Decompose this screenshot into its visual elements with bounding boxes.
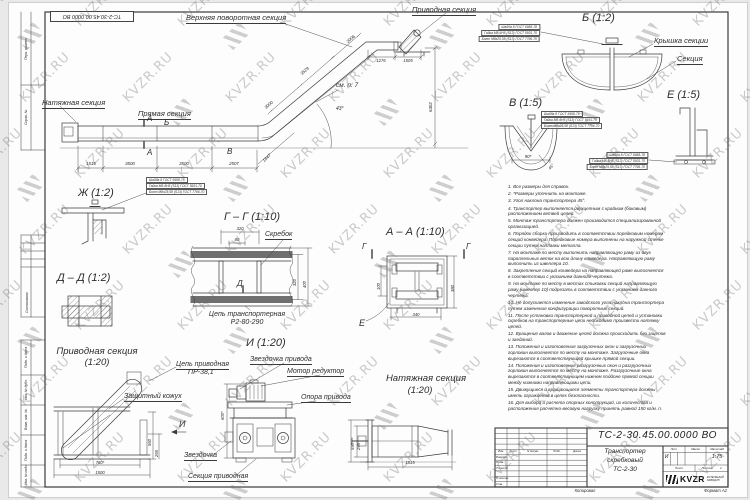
- detail-mark-v: В: [227, 148, 232, 156]
- note-item: 3. Угол наклона транспортера 45°.: [508, 198, 666, 204]
- label-sekciya: Секция: [677, 55, 703, 65]
- frame-label-soglasovano: Согласовано: [26, 292, 29, 313]
- frame-label-inv-podl: Инв. № подл.: [25, 464, 28, 485]
- dim-80: 80: [235, 238, 240, 242]
- dim-590: 590: [351, 443, 355, 450]
- label-verhnyaya-povorotnaya-s: Верхняя поворотная секция: [186, 14, 286, 24]
- titleblock-row-utv: Утв.: [496, 483, 503, 486]
- dim-1505: 1505: [403, 59, 412, 63]
- dim-600: 600*: [221, 411, 225, 420]
- callout-bolt: Болт М8х25,58 (S13) ГОСТ 7796-70: [479, 36, 540, 42]
- dim-3500-2: 3500: [179, 162, 189, 166]
- dim-90: 90*: [525, 155, 532, 159]
- titleblock-scale-header: Масштаб: [706, 448, 728, 451]
- dim-340: 340: [413, 313, 420, 317]
- dim-1515-natyazh: 1515: [405, 461, 414, 465]
- dim-3529: 3529: [300, 67, 310, 77]
- natyazh-view-title-2: (1:20): [408, 386, 433, 396]
- note-item: 10. Не допускается изменение заводского …: [508, 300, 666, 311]
- kvzr-logo-text: KVZR: [680, 474, 705, 484]
- dim-6302: 6302: [429, 102, 433, 112]
- kvzr-logo-stripes-icon: [666, 475, 678, 484]
- note-item: 12. Вращение валов и движение цепей долж…: [508, 331, 666, 342]
- detail-v-title: В (1:5): [509, 98, 542, 109]
- format-label: Формат А2: [704, 489, 727, 493]
- titleblock-mass-header: Масса: [685, 448, 706, 451]
- titleblock-lit-header: Лит.: [663, 448, 685, 451]
- label-sekciya-privodnaya: Секция приводная: [188, 473, 248, 482]
- dim-2006: 2006: [346, 35, 356, 45]
- detail-aa-title: А – А (1:10): [386, 227, 445, 238]
- dim-560: 560: [148, 439, 152, 446]
- titleblock-row-prov: Пров.: [496, 461, 504, 464]
- frame-label-podp-data-1: Подп. и дата: [25, 347, 28, 368]
- section-mark-a-top: А: [147, 115, 152, 123]
- titleblock-product-line-1: Транспортер: [588, 449, 662, 456]
- note-item: 16. Для выбора и расчета опорных констру…: [508, 400, 666, 411]
- dim-1847: 1847: [262, 153, 272, 163]
- note-item: 15. Движущиеся и вращающиеся элементы тр…: [508, 387, 666, 398]
- label-cep-transporternaya: Цепь транспортерная: [209, 311, 285, 318]
- note-item: 2. *Размеры уточнить на монтаже.: [508, 191, 666, 197]
- dim-3500-1: 3500: [125, 162, 135, 166]
- note-item: 7. На монтаже по месту выполнить направл…: [508, 250, 666, 267]
- titleblock-col-ndokum: N докум.: [519, 450, 547, 453]
- note-item: 14. Положения и изготовления разгрузочны…: [508, 363, 666, 386]
- titleblock-sheets-value: 1: [720, 467, 728, 470]
- privod-view-title-2: (1:20): [85, 358, 110, 368]
- label-zvezdochka: Звездочка: [184, 452, 217, 461]
- dim-295: 295: [357, 443, 361, 450]
- dim-320-top: 320: [237, 227, 244, 231]
- note-item: 1. Все размеры для справок.: [508, 184, 666, 190]
- titleblock-lit-value: И: [663, 455, 670, 460]
- label-cep-privodnaya-type: ПР-38,1: [188, 369, 214, 376]
- view-mark-i: И: [179, 420, 185, 429]
- natyazh-view-title-1: Натяжная секция: [386, 374, 466, 384]
- note-item: 5. Монтаж транспортера должен производит…: [508, 218, 666, 229]
- kvzr-logo-sub-2: ЗАВОД.РУ: [707, 479, 724, 482]
- note-item: 4. Транспортер выполняется двухцепным с …: [508, 206, 666, 217]
- dim-1276: 1276: [376, 59, 385, 63]
- callout-bolt-e: Болт М8х25,58 (S13) ГОСТ 7796-70: [587, 164, 648, 170]
- callout-bolt-v: Болт М8х25,58 (S13) ГОСТ 7796-70: [541, 123, 602, 129]
- frame-label-perv-primen: Перв. примен.: [25, 37, 28, 60]
- section-mark-d: Д: [237, 280, 243, 288]
- titleblock-doc-number: ТС-2-30.45.00.0000 ВО: [588, 431, 727, 441]
- label-privodnaya-s: Приводная секция: [412, 6, 476, 16]
- titleblock-product-line-3: ТС-2-30: [588, 467, 662, 474]
- dim-380: 380: [451, 285, 455, 292]
- dim-400: 400: [303, 281, 307, 288]
- note-item: 13. Положения и изготовления загрузочных…: [508, 344, 666, 361]
- dim-angle-43: 43°: [336, 107, 344, 112]
- frame-label-sprav-no: Справ. №: [25, 110, 28, 125]
- dim-2507: 2507: [229, 162, 239, 166]
- note-item: 6. Порядок сборки производить в соответс…: [508, 231, 666, 248]
- titleblock-col-data: Дата: [567, 450, 587, 453]
- dim-angle-45: 45°: [548, 163, 555, 170]
- detail-mark-b: Б: [164, 119, 169, 127]
- blueprint-page: ТС-2-30.45.00.0000 ВО Натяжная секцияПря…: [0, 0, 750, 500]
- label-skrebok: Скребок: [265, 231, 292, 240]
- label-opora-privoda: Опора привода: [301, 394, 351, 403]
- note-item: 9. На монтаже по месту в местах стыковки…: [508, 281, 666, 298]
- titleblock-row-nkontr: Н.контр.: [496, 477, 509, 480]
- titleblock-sheet-label: Лист: [663, 467, 695, 470]
- detail-dd-title: Д – Д (1:2): [57, 273, 110, 284]
- label-kryshka-sekcii: Крышка секции: [654, 37, 708, 47]
- dim-265: 265: [155, 450, 159, 457]
- detail-zh-title: Ж (1:2): [78, 188, 114, 199]
- titleblock-col-list: Лист: [507, 450, 519, 453]
- dim-780: 780*: [96, 461, 105, 465]
- view-i-title: И (1:20): [246, 338, 286, 349]
- section-mark-g-left: Г: [362, 243, 366, 251]
- note-see-item-7: см. п. 7: [336, 83, 358, 90]
- dim-1515: 1515: [86, 162, 96, 166]
- titleblock-col-podp: Подп.: [547, 450, 567, 453]
- dim-1500: 1500: [95, 471, 104, 475]
- detail-mark-e: Е: [359, 319, 365, 328]
- label-natyazhnaya-s: Натяжная секция: [42, 99, 105, 109]
- callout-bolt-zh: Болт М8х25,58 (S13) ГОСТ 7796-70: [146, 189, 207, 195]
- detail-gg-title: Г – Г (1:10): [224, 212, 280, 223]
- note-item: 11. После установки транспортерной и при…: [508, 313, 666, 330]
- technical-notes: 1. Все размеры для справок.2. *Размеры у…: [508, 184, 666, 413]
- section-mark-g-right: Г: [466, 243, 470, 251]
- frame-label-inv-dubl: Инв. № дубл.: [25, 379, 28, 400]
- section-mark-a-bottom: А: [147, 149, 152, 157]
- titleblock-sheets-label: Листов: [695, 467, 719, 470]
- label-motor-reduktor: Мотор редуктор: [287, 368, 344, 377]
- note-item: 8. Закрепление секций конвейера на напра…: [508, 268, 666, 279]
- titleblock-col-izm: Изм.: [495, 450, 507, 453]
- label-zashitny-kozhuh: Защитный кожух: [124, 393, 182, 402]
- kvzr-logo: KVZR КОТЕЛЬНЫЙ ЗАВОД.РУ: [666, 472, 726, 486]
- titleblock-row-tkontr: Т.контр.: [496, 467, 508, 470]
- label-zvezdochka-privoda: Звездочка привода: [250, 356, 312, 365]
- copied-label: Копировал: [575, 489, 596, 493]
- dim-100: 100: [377, 283, 381, 290]
- detail-b-title: Б (1:2): [582, 13, 615, 24]
- detail-e-title: Е (1:5): [667, 90, 700, 101]
- privod-view-title-1: Приводная секция: [56, 347, 137, 357]
- dim-3000: 3000: [264, 101, 274, 111]
- frame-label-podp-data-2: Подп. и дата: [25, 440, 28, 461]
- titleblock-row-razrab: Разраб.: [496, 456, 507, 459]
- dim-320-right: 320: [293, 279, 297, 286]
- titleblock-product-line-2: скребковый: [588, 458, 662, 465]
- titleblock-scale-value: 1:75: [706, 455, 728, 461]
- label-cep-type: Р2-80-290: [231, 319, 264, 326]
- frame-label-vzam-inv: Взам. инв. №: [25, 409, 28, 430]
